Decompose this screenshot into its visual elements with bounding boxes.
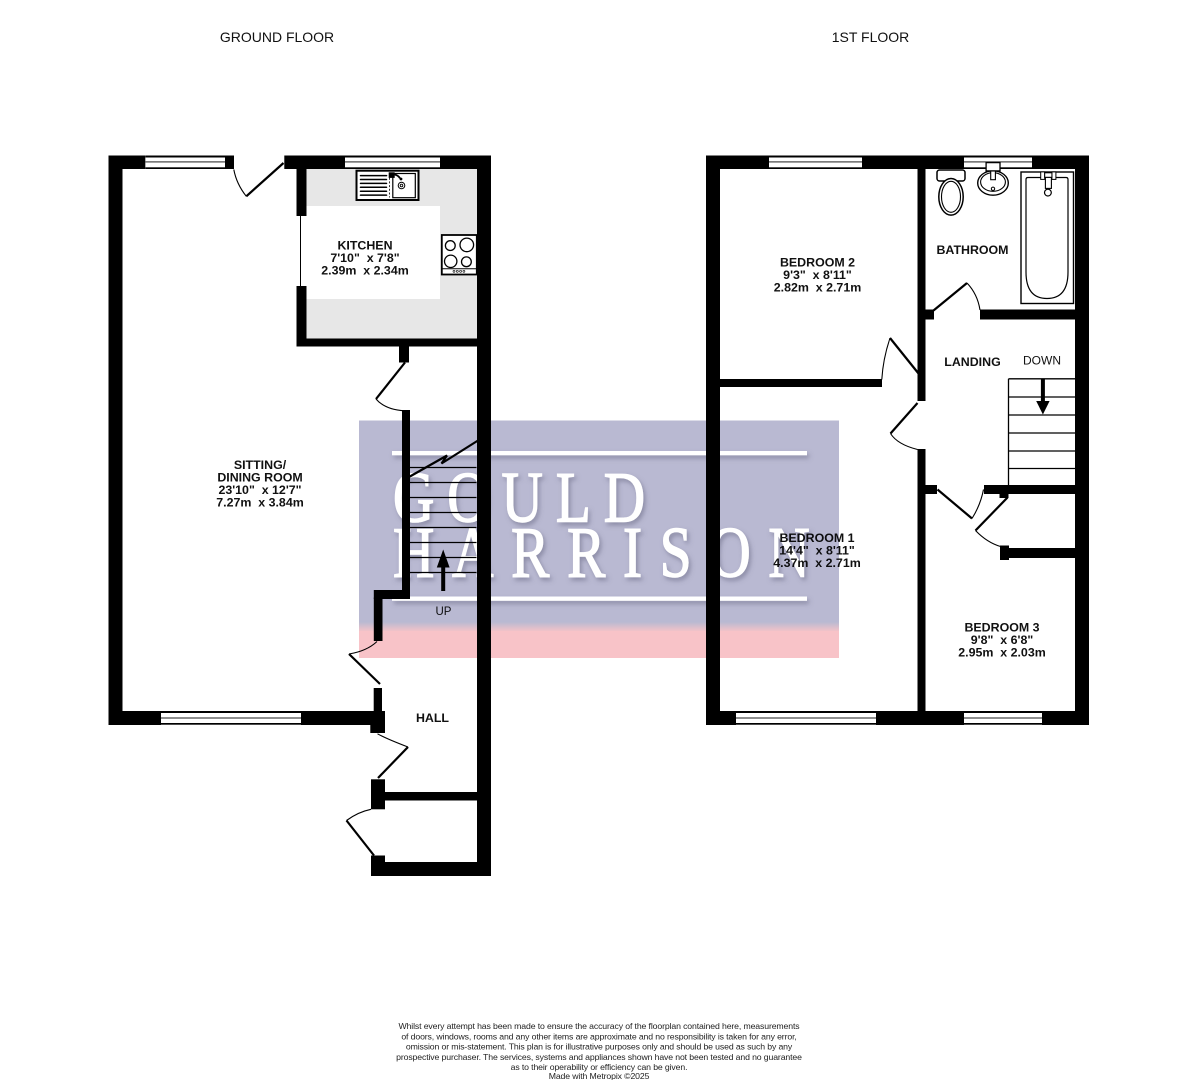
svg-text:HARRISON: HARRISON xyxy=(393,514,827,594)
